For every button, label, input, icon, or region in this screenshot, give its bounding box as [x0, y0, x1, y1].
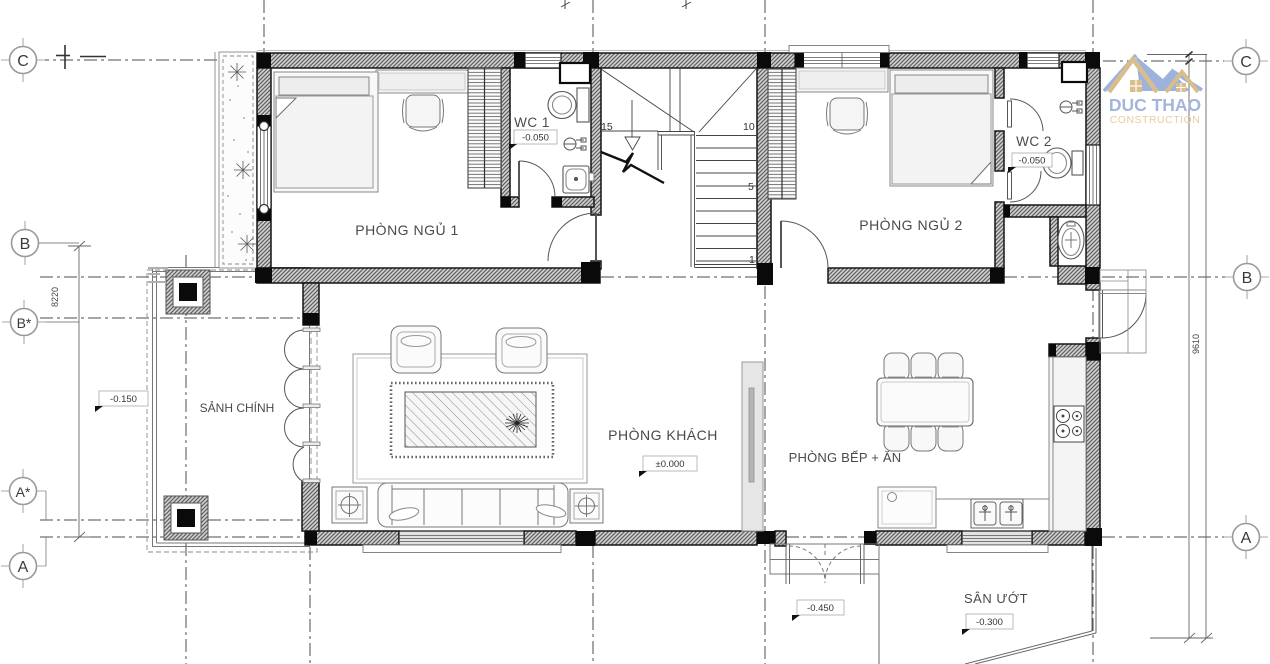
- svg-text:CONSTRUCTION: CONSTRUCTION: [1110, 114, 1201, 126]
- svg-text:-0.300: -0.300: [976, 617, 1003, 628]
- svg-text:DUC THAO: DUC THAO: [1109, 95, 1201, 115]
- svg-text:1: 1: [749, 254, 755, 266]
- svg-text:WC 1: WC 1: [514, 115, 550, 130]
- svg-text:PHÒNG BẾP + ĂN: PHÒNG BẾP + ĂN: [789, 450, 902, 465]
- svg-text:WC 2: WC 2: [1016, 134, 1052, 149]
- svg-text:PHÒNG NGỦ 1: PHÒNG NGỦ 1: [355, 221, 459, 238]
- svg-text:-0.450: -0.450: [807, 603, 834, 614]
- svg-text:-0.150: -0.150: [110, 394, 137, 405]
- svg-text:8220: 8220: [50, 287, 60, 307]
- svg-text:PHÒNG NGỦ 2: PHÒNG NGỦ 2: [859, 216, 963, 233]
- svg-text:10: 10: [743, 121, 755, 133]
- svg-text:B: B: [1242, 270, 1253, 287]
- svg-text:SÂN ƯỚT: SÂN ƯỚT: [964, 591, 1028, 606]
- svg-text:SẢNH CHÍNH: SẢNH CHÍNH: [200, 400, 275, 415]
- svg-text:15: 15: [601, 121, 613, 133]
- svg-text:-0.050: -0.050: [1019, 156, 1046, 167]
- svg-text:A: A: [1241, 530, 1252, 547]
- svg-text:A: A: [18, 559, 29, 576]
- svg-text:C: C: [1240, 54, 1252, 71]
- svg-text:B*: B*: [17, 315, 32, 331]
- svg-text:C: C: [17, 53, 29, 70]
- svg-text:±0.000: ±0.000: [656, 459, 685, 470]
- svg-text:9610: 9610: [1191, 334, 1201, 354]
- svg-text:5: 5: [748, 181, 754, 193]
- svg-text:A*: A*: [16, 484, 31, 500]
- svg-text:PHÒNG KHÁCH: PHÒNG KHÁCH: [608, 427, 718, 443]
- svg-text:B: B: [20, 236, 31, 253]
- svg-text:-0.050: -0.050: [522, 133, 549, 144]
